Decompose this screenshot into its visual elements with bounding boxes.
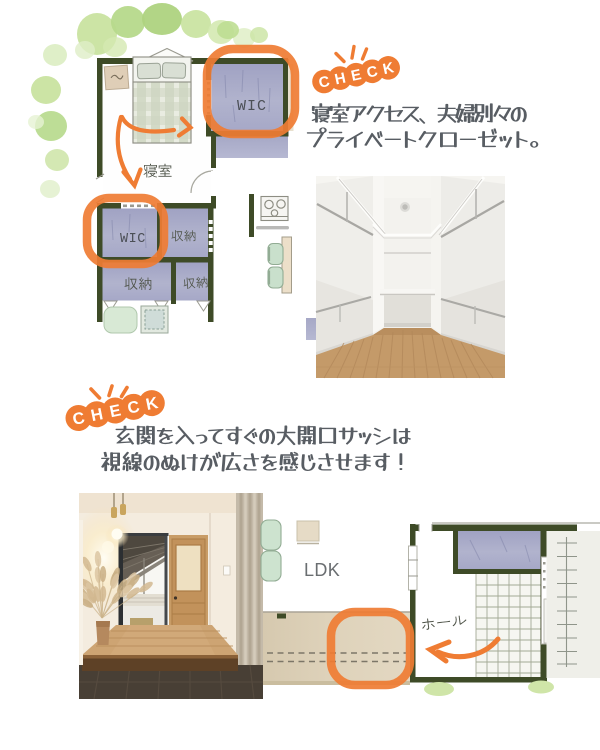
svg-text:WIC: WIC — [237, 98, 267, 115]
svg-text:LDK: LDK — [304, 560, 340, 580]
svg-text:WIC: WIC — [120, 232, 146, 247]
